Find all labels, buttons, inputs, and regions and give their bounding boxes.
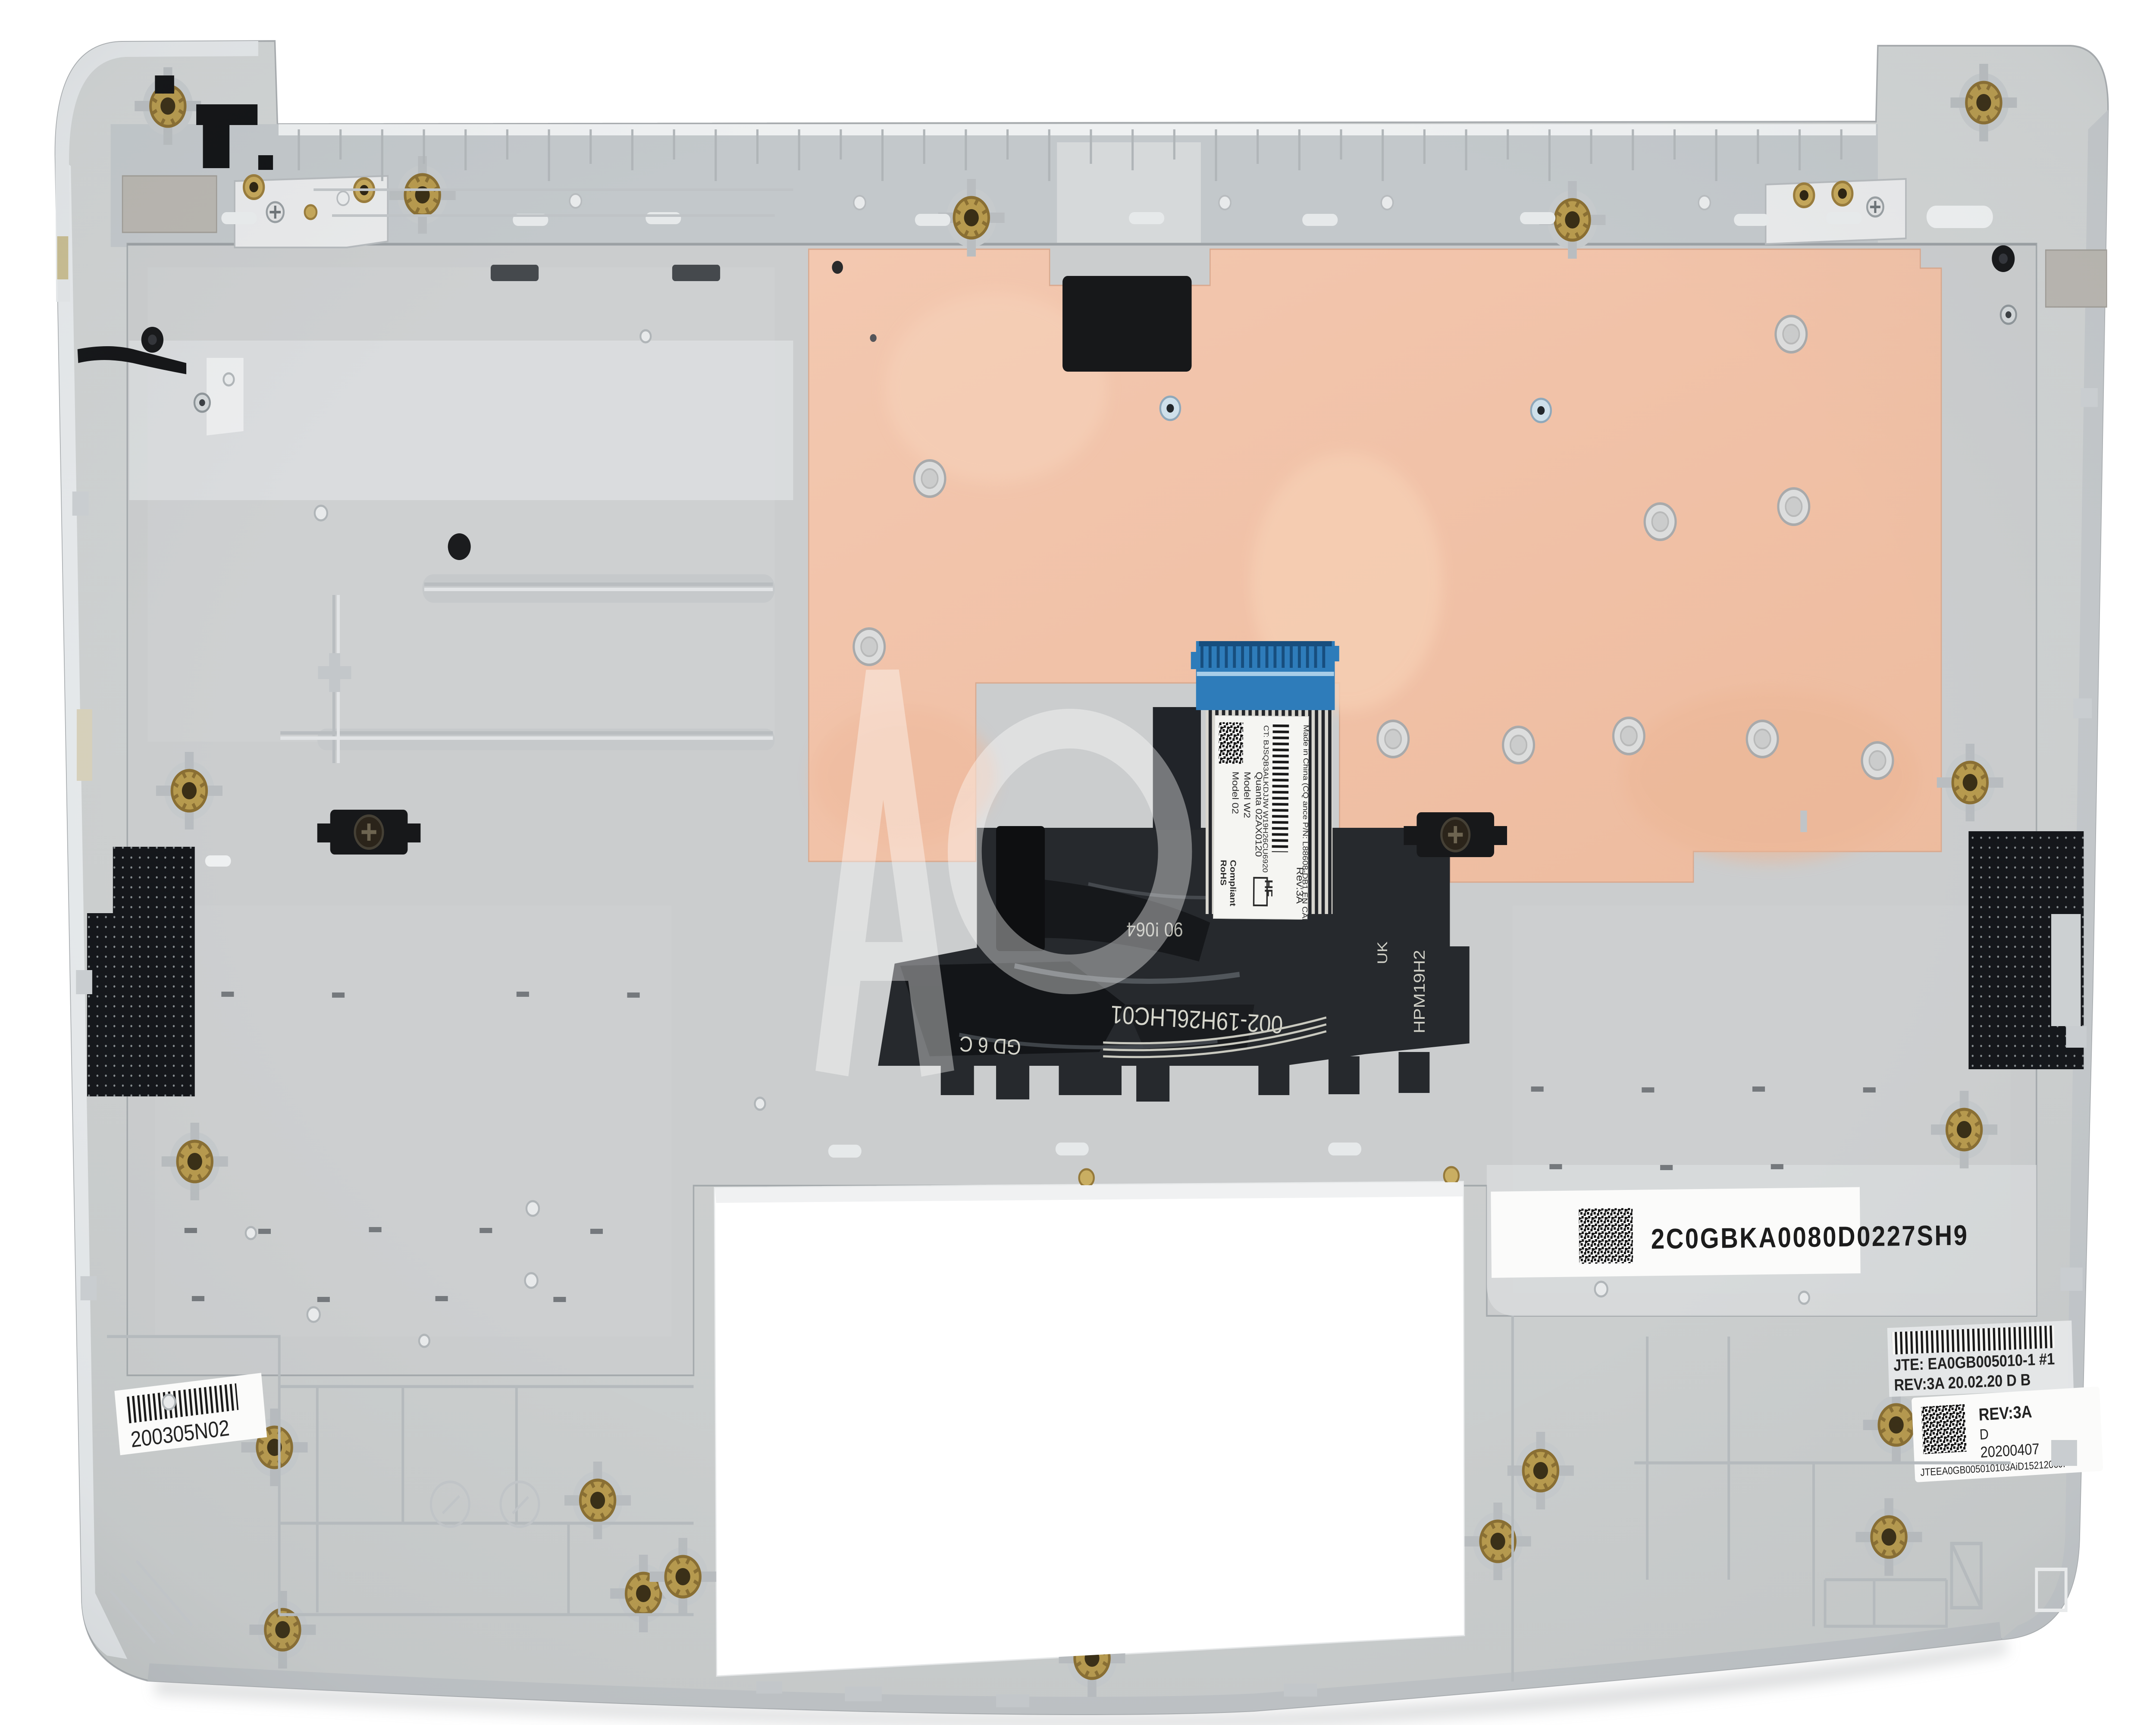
svg-text:D: D — [1979, 1425, 1989, 1443]
svg-text:20200407: 20200407 — [1980, 1440, 2040, 1461]
svg-text:2C0GBKA0080D0227SH9: 2C0GBKA0080D0227SH9 — [1651, 1219, 1969, 1255]
svg-text:REV:3A: REV:3A — [1978, 1402, 2032, 1424]
